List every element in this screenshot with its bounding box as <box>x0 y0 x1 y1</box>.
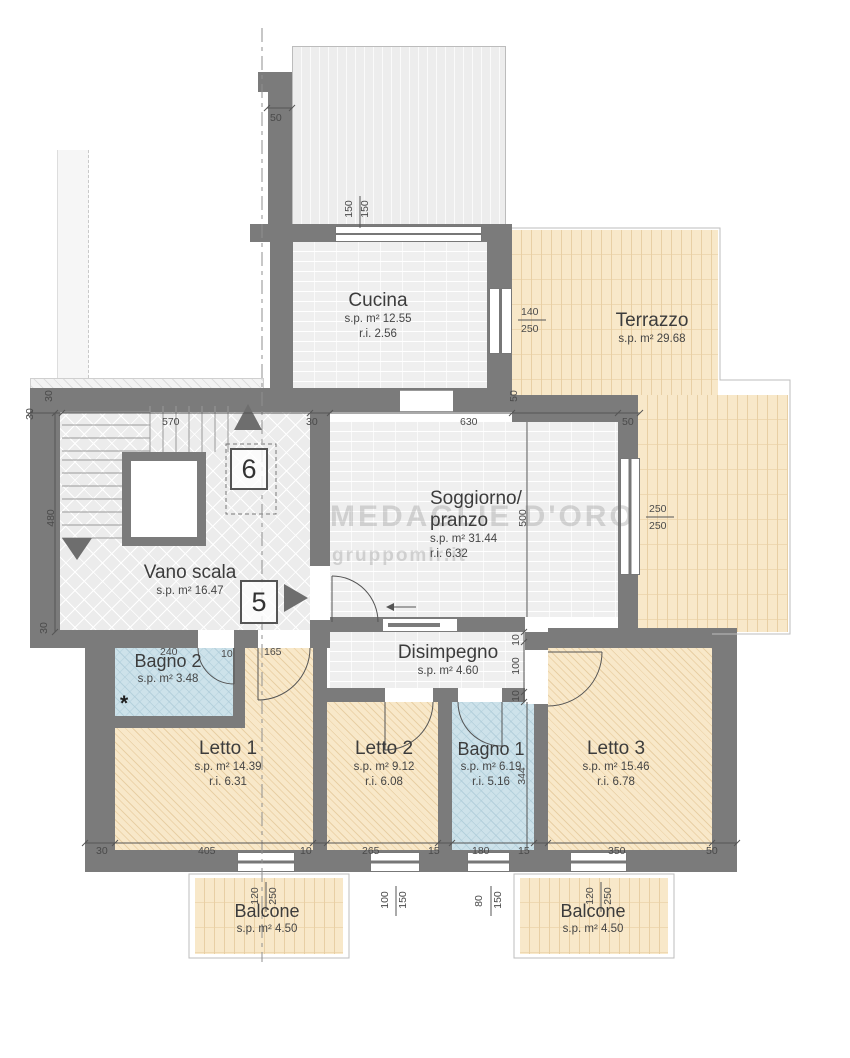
dim: 100 <box>379 891 391 909</box>
dim: 30 <box>24 408 36 420</box>
wall-segment <box>548 628 712 648</box>
dim: 350 <box>608 845 626 857</box>
room-ri: r.i. 6.31 <box>194 775 261 790</box>
dim: 100 <box>510 657 522 675</box>
room-label-cucina: Cucina s.p. m² 12.55 r.i. 2.56 <box>344 290 411 342</box>
room-ri: r.i. 2.56 <box>344 327 411 342</box>
room-label-letto3: Letto 3 s.p. m² 15.46 r.i. 6.78 <box>582 738 649 790</box>
passage-cucina <box>400 390 453 412</box>
dim: 405 <box>198 845 216 857</box>
room-label-disimpegno: Disimpegno s.p. m² 4.60 <box>398 642 498 679</box>
dim: 180 <box>472 845 490 857</box>
dim: 344 <box>516 767 528 785</box>
door-gap-bagno1 <box>458 688 502 702</box>
room-label-terrazzo: Terrazzo s.p. m² 29.68 <box>616 310 689 347</box>
room-area: s.p. m² 6.19 <box>457 760 524 775</box>
wall-segment <box>258 72 292 92</box>
room-area: s.p. m² 31.44 <box>430 532 522 547</box>
room-name: Cucina <box>344 290 411 312</box>
dim: 120 <box>584 887 596 905</box>
room-name: Vano scala <box>144 562 237 584</box>
adjacent-wall-strip <box>57 150 89 378</box>
dim: 500 <box>517 509 529 527</box>
wall-segment <box>115 716 245 728</box>
room-name: pranzo <box>430 510 522 532</box>
wall-segment <box>313 648 327 850</box>
dim: 250 <box>649 503 667 515</box>
room-label-balcone-right: Balcone s.p. m² 4.50 <box>560 900 625 937</box>
dim: 150 <box>343 200 355 218</box>
room-ri: r.i. 6.78 <box>582 775 649 790</box>
wall-segment <box>438 702 452 850</box>
room-label-balcone-left: Balcone s.p. m² 4.50 <box>234 900 299 937</box>
dim: 10 <box>221 648 233 660</box>
dim: 140 <box>521 306 539 318</box>
floor-plan: MEDAGLIE D'ORO gruppomlr.it Cucina s.p. … <box>0 0 850 1058</box>
door-gap-bagno2 <box>198 630 234 648</box>
room-label-letto2: Letto 2 s.p. m² 9.12 r.i. 6.08 <box>354 738 415 790</box>
floor-marker-5: 5 <box>240 580 278 624</box>
room-area: s.p. m² 3.48 <box>134 672 201 687</box>
dim: 15 <box>428 845 440 857</box>
room-name: Letto 2 <box>354 738 415 760</box>
dim: 30 <box>43 390 55 402</box>
room-area: s.p. m² 16.47 <box>144 584 237 599</box>
wall-segment <box>270 242 293 392</box>
sliding-door-slot <box>383 619 457 631</box>
dim: 265 <box>362 845 380 857</box>
dim: 50 <box>270 112 282 124</box>
dim: 165 <box>264 646 282 658</box>
wall-segment <box>534 702 548 850</box>
room-label-letto1: Letto 1 s.p. m² 14.39 r.i. 6.31 <box>194 738 261 790</box>
room-name: Soggiorno/ <box>430 488 522 510</box>
dim: 150 <box>492 891 504 909</box>
room-label-bagno1: Bagno 1 s.p. m² 6.19 r.i. 5.16 <box>457 738 524 790</box>
room-area: s.p. m² 15.46 <box>582 760 649 775</box>
dim: 50 <box>508 390 520 402</box>
dim: 250 <box>649 520 667 532</box>
door-gap-letto2 <box>385 688 433 702</box>
room-name: Terrazzo <box>616 310 689 332</box>
room-area: s.p. m² 4.50 <box>560 922 625 937</box>
room-name: Disimpegno <box>398 642 498 664</box>
dim: 10 <box>510 634 522 646</box>
room-area: s.p. m² 4.60 <box>398 664 498 679</box>
room-name: Bagno 1 <box>457 738 524 760</box>
dim: 250 <box>602 887 614 905</box>
window <box>335 226 482 242</box>
dim: 50 <box>622 416 634 428</box>
dim: 150 <box>359 200 371 218</box>
dim: 10 <box>510 690 522 702</box>
room-ri: r.i. 5.16 <box>457 775 524 790</box>
dim: 30 <box>306 416 318 428</box>
dim: 250 <box>267 887 279 905</box>
dim: 10 <box>300 845 312 857</box>
room-area: s.p. m² 14.39 <box>194 760 261 775</box>
room-area: s.p. m² 12.55 <box>344 312 411 327</box>
roof-skylight-area <box>292 46 506 230</box>
room-ri: r.i. 6.32 <box>430 547 522 562</box>
dim: 150 <box>397 891 409 909</box>
room-area: s.p. m² 29.68 <box>616 332 689 347</box>
wall-segment <box>712 628 737 872</box>
door-gap-vano-scala <box>310 566 330 620</box>
dim: 80 <box>473 895 485 907</box>
wall-segment <box>85 630 115 872</box>
window <box>489 288 512 354</box>
room-name: Letto 1 <box>194 738 261 760</box>
dim: 30 <box>38 622 50 634</box>
dim: 250 <box>521 323 539 335</box>
dim: 630 <box>460 416 478 428</box>
room-area: s.p. m² 4.50 <box>234 922 299 937</box>
room-label-vano-scala: Vano scala s.p. m² 16.47 <box>144 562 237 599</box>
dim: 480 <box>45 509 57 527</box>
dim: 120 <box>249 887 261 905</box>
dim: 15 <box>518 845 530 857</box>
dim: 30 <box>96 845 108 857</box>
window <box>237 852 295 872</box>
room-label-soggiorno: Soggiorno/ pranzo s.p. m² 31.44 r.i. 6.3… <box>430 488 522 562</box>
floor-marker-6: 6 <box>230 448 268 490</box>
bagno2-note-asterisk: * <box>120 692 128 716</box>
room-name: Letto 3 <box>582 738 649 760</box>
dim: 570 <box>162 416 180 428</box>
elevator-shaft <box>122 452 206 546</box>
dim: 50 <box>706 845 718 857</box>
room-ri: r.i. 6.08 <box>354 775 415 790</box>
room-area: s.p. m² 9.12 <box>354 760 415 775</box>
door-gap-letto3 <box>525 650 548 704</box>
dim: 240 <box>160 646 178 658</box>
